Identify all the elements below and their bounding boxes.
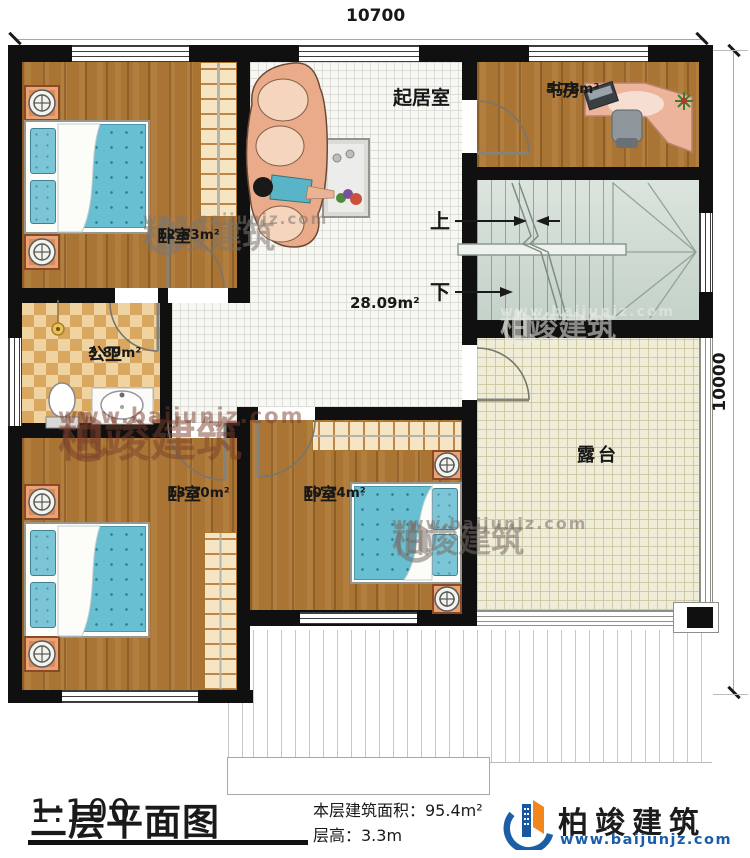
extension-line bbox=[713, 694, 748, 695]
extension-line bbox=[713, 50, 748, 51]
watermark-site: www.baijunjz.com bbox=[500, 304, 675, 320]
lower-roof-hatch-left bbox=[228, 700, 253, 763]
floor-height-text: 层高：3.3m bbox=[313, 822, 402, 846]
wall-bedroom1-bottom-a bbox=[8, 288, 115, 303]
stairs-down-label: 下 bbox=[430, 276, 450, 305]
bedroom2-wardrobe bbox=[204, 532, 237, 690]
brand-logo bbox=[502, 794, 554, 850]
window-left-bathroom bbox=[8, 338, 22, 426]
wall-mid-vertical-b bbox=[462, 153, 477, 345]
wall-right bbox=[699, 45, 713, 338]
wall-bedroom3-top-b bbox=[315, 407, 462, 420]
stairs-up-label: 上 bbox=[430, 205, 450, 234]
wall-mid-vertical-a bbox=[462, 45, 477, 100]
bedroom1-nightstand-bottom bbox=[24, 234, 60, 270]
dimension-height: 10000 bbox=[710, 352, 730, 412]
bedroom3-wardrobe bbox=[312, 421, 462, 451]
watermark-site: www.baijunjz.com bbox=[392, 514, 587, 533]
dimension-tick bbox=[727, 686, 740, 699]
room-name: 起居室 bbox=[393, 88, 450, 109]
wall-mid-vertical-c bbox=[462, 400, 477, 626]
floor-area-text: 本层建筑面积：95.4m² bbox=[313, 797, 483, 821]
window-bottom-bedroom3 bbox=[300, 612, 417, 624]
floor-plan-page: 柏竣建筑 www.baijunjz.com 柏竣建筑 www.baijunjz.… bbox=[0, 0, 750, 858]
room-area: 13.30m² bbox=[167, 486, 230, 501]
drawing-scale: 1:100 bbox=[30, 792, 132, 830]
bedroom1-bed bbox=[24, 120, 150, 234]
title-underline bbox=[28, 840, 308, 845]
bedroom2-bed bbox=[24, 522, 150, 638]
terrace-railing-bottom bbox=[477, 610, 673, 626]
bedroom1-wardrobe bbox=[200, 62, 237, 217]
dimension-line-right bbox=[733, 50, 734, 695]
wall-bedroom1-bottom-c bbox=[228, 288, 250, 303]
room-area: 12.63m² bbox=[157, 228, 220, 243]
room-name: 露台 bbox=[577, 446, 619, 466]
terrace-floor bbox=[477, 338, 699, 610]
lower-roof-hatch bbox=[253, 630, 712, 763]
brand-site: www.baijunjz.com bbox=[560, 832, 732, 848]
brand-logo-icon bbox=[502, 794, 554, 850]
bedroom2-nightstand-bottom bbox=[24, 636, 60, 672]
dimension-width: 10700 bbox=[346, 6, 405, 26]
terrace-column bbox=[687, 607, 713, 628]
window-top-3 bbox=[529, 45, 648, 62]
window-right-stairs bbox=[699, 213, 713, 292]
stair-treads bbox=[477, 180, 613, 320]
watermark-site: www.baijunjz.com bbox=[58, 404, 305, 428]
bedroom1-nightstand-top bbox=[24, 85, 60, 121]
window-bottom-bedroom2 bbox=[62, 690, 198, 703]
bedroom2-nightstand-top bbox=[24, 484, 60, 520]
room-area: 5.78m² bbox=[546, 82, 599, 97]
wall-bedroom1-bottom-b bbox=[158, 288, 168, 303]
window-top-2 bbox=[299, 45, 419, 62]
dimension-line-top bbox=[14, 39, 703, 40]
wall-study-bottom bbox=[462, 167, 713, 180]
bedroom3-nightstand-top bbox=[432, 450, 462, 480]
room-area: 10.34m² bbox=[303, 486, 366, 501]
bedroom3-nightstand-bottom bbox=[432, 584, 462, 614]
watermark-site: www.baijunjz.com bbox=[143, 210, 328, 228]
room-area: 28.09m² bbox=[350, 295, 420, 312]
window-top-1 bbox=[72, 45, 189, 62]
porch-outline bbox=[227, 757, 490, 795]
living-room-floor bbox=[250, 62, 462, 407]
room-area: 3.89m² bbox=[88, 346, 141, 361]
study-floor bbox=[477, 62, 699, 167]
coffee-table bbox=[322, 138, 370, 218]
